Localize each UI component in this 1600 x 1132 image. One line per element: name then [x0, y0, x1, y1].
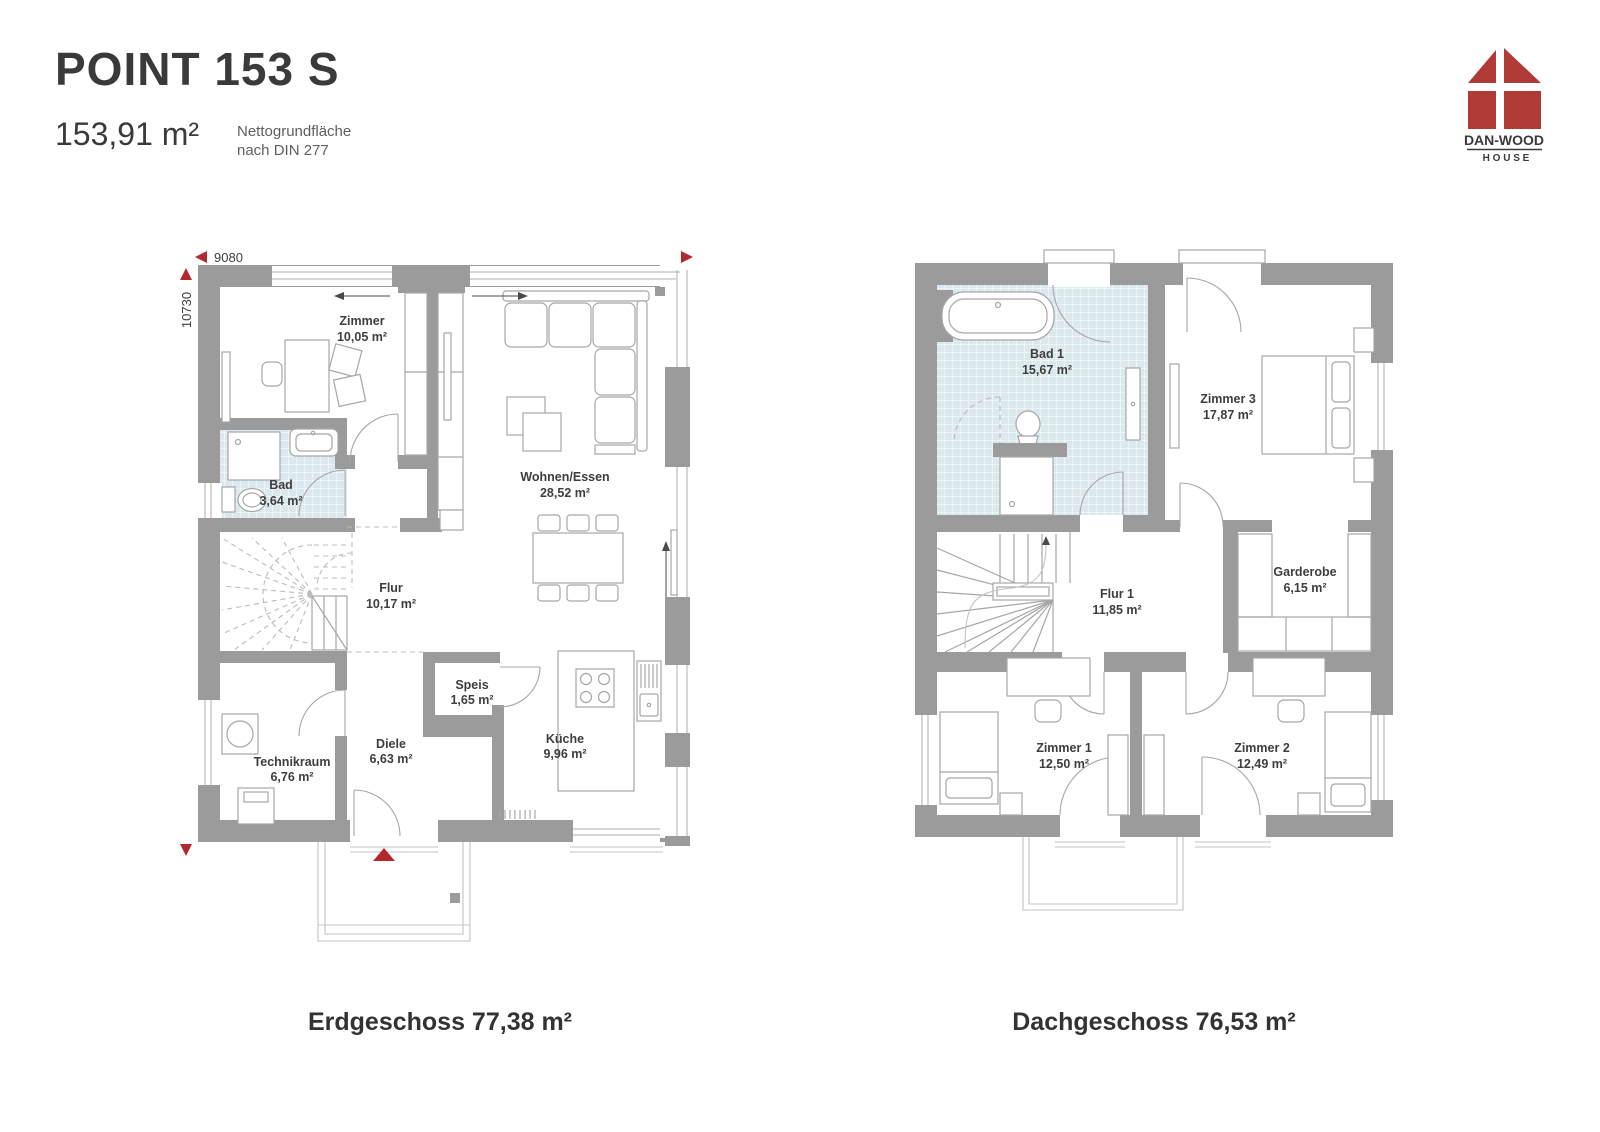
eg-shower [228, 432, 280, 480]
dg-zimmer2-furniture [1144, 658, 1371, 815]
eg-dining-table [533, 533, 623, 583]
area-note: Nettogrundfläche nach DIN 277 [237, 122, 351, 160]
eg-zimmer-label: Zimmer [339, 314, 384, 328]
eg-flur-label: Flur [379, 581, 403, 595]
dachgeschoss-caption: Dachgeschoss 76,53 m² [904, 1008, 1404, 1037]
dimension-arrow-icon [681, 251, 693, 263]
dg-nightstand [1298, 793, 1320, 815]
eg-speis-area: 1,65 m² [450, 693, 493, 707]
dg-zimmer2-area: 12,49 m² [1237, 757, 1287, 771]
dg-desk-z1 [1007, 658, 1090, 696]
eg-wohnen-area: 28,52 m² [540, 486, 590, 500]
dg-zimmer3-area: 17,87 m² [1203, 408, 1253, 422]
eg-kueche-area: 9,96 m² [543, 747, 586, 761]
eg-desk [285, 340, 329, 412]
page-title: POINT 153 S [55, 42, 340, 96]
eg-porch [318, 842, 470, 941]
logo-square-right [1504, 91, 1541, 129]
dg-bad1-label: Bad 1 [1030, 347, 1064, 361]
erdgeschoss-caption: Erdgeschoss 77,38 m² [190, 1008, 690, 1037]
eg-living-furniture [503, 291, 649, 601]
dg-wc [1016, 411, 1040, 437]
dg-nightstand [1354, 328, 1374, 352]
eg-kueche-label: Küche [546, 732, 584, 746]
eg-stairs [222, 538, 347, 650]
eg-corner-post [655, 287, 665, 296]
eg-technik-fixtures [222, 714, 274, 824]
area-note-line1: Nettogrundfläche [237, 122, 351, 141]
logo-roof-left [1468, 50, 1496, 83]
eg-wc-tank [222, 487, 235, 512]
eg-wall-pier-1 [665, 367, 690, 467]
logo-roof-right [1504, 48, 1541, 83]
dg-zimmer3-label: Zimmer 3 [1200, 392, 1256, 406]
eg-height-dimension: 10730 [179, 292, 194, 328]
dg-garderobe-area: 6,15 m² [1283, 581, 1326, 595]
floorplan-sheet: POINT 153 S 153,91 m² Nettogrundfläche n… [0, 0, 1600, 1132]
eg-zimmer-area: 10,05 m² [337, 330, 387, 344]
dg-bad1-area: 15,67 m² [1022, 363, 1072, 377]
eg-slider-sash [671, 530, 677, 595]
dg-zimmer1-label: Zimmer 1 [1036, 741, 1092, 755]
eg-wall-pier-3 [665, 733, 690, 767]
dg-shower [1000, 457, 1053, 515]
dg-garderobe-label: Garderobe [1273, 565, 1336, 579]
logo-square-left [1468, 91, 1496, 129]
eg-bad-label: Bad [269, 478, 293, 492]
dg-radiator-bad [1126, 368, 1140, 440]
dg-zimmer1-furniture [940, 658, 1128, 815]
eg-bad-area: 3,64 m² [259, 494, 302, 508]
eg-dining-chair [538, 515, 560, 531]
dg-balcony [1023, 837, 1183, 910]
entrance-marker-icon [373, 848, 395, 861]
eg-diele-area: 6,63 m² [369, 752, 412, 766]
eg-wall-pier-2 [665, 597, 690, 665]
dg-flur1-label: Flur 1 [1100, 587, 1134, 601]
eg-radiator-zimmer [222, 352, 230, 422]
logo-brand-text: DAN-WOOD [1464, 132, 1544, 148]
danwood-logo-icon: DAN-WOOD H O U S E [1462, 46, 1552, 166]
dg-wardrobe-z2 [1144, 735, 1164, 815]
area-note-line2: nach DIN 277 [237, 141, 351, 160]
eg-boiler [238, 788, 274, 824]
logo-sub-text: H O U S E [1483, 153, 1530, 164]
eg-radiator-wohnen [444, 333, 451, 420]
dimension-arrow-icon [195, 251, 207, 263]
eg-diele-label: Diele [376, 737, 406, 751]
dg-flur1-area: 11,85 m² [1092, 603, 1141, 617]
erdgeschoss-floorplan: 9080 10730 Zimmer 10,05 m² Bad 3,64 m² F… [170, 240, 715, 955]
dimension-arrow-icon [180, 844, 192, 856]
dg-wardrobe-z1 [1108, 735, 1128, 815]
dg-roof-window [1179, 250, 1265, 263]
dg-zimmer2-label: Zimmer 2 [1234, 741, 1290, 755]
total-area: 153,91 m² [55, 116, 199, 153]
eg-wohnen-label: Wohnen/Essen [520, 470, 609, 484]
eg-desk-chair [262, 362, 282, 386]
dimension-arrow-icon [180, 268, 192, 280]
eg-speis-label: Speis [455, 678, 488, 692]
dg-nightstand [1354, 458, 1374, 482]
dg-roof-window [1044, 250, 1114, 263]
dg-zimmer1-area: 12,50 m² [1039, 757, 1089, 771]
eg-zimmer-furniture [262, 340, 366, 412]
dg-radiator-z3 [1170, 364, 1179, 448]
dg-desk-z2 [1253, 658, 1325, 696]
dg-nightstand [1000, 793, 1022, 815]
eg-technik-label: Technikraum [254, 755, 331, 769]
eg-wall-corner [665, 836, 690, 846]
eg-technik-area: 6,76 m² [270, 770, 313, 784]
eg-glass-facade [655, 265, 690, 846]
eg-sink [290, 429, 338, 456]
eg-flur-area: 10,17 m² [366, 597, 416, 611]
dachgeschoss-floorplan: Bad 1 15,67 m² Zimmer 3 17,87 m² Gardero… [880, 240, 1420, 930]
dg-stairs [937, 532, 1070, 652]
eg-width-dimension: 9080 [214, 250, 243, 265]
